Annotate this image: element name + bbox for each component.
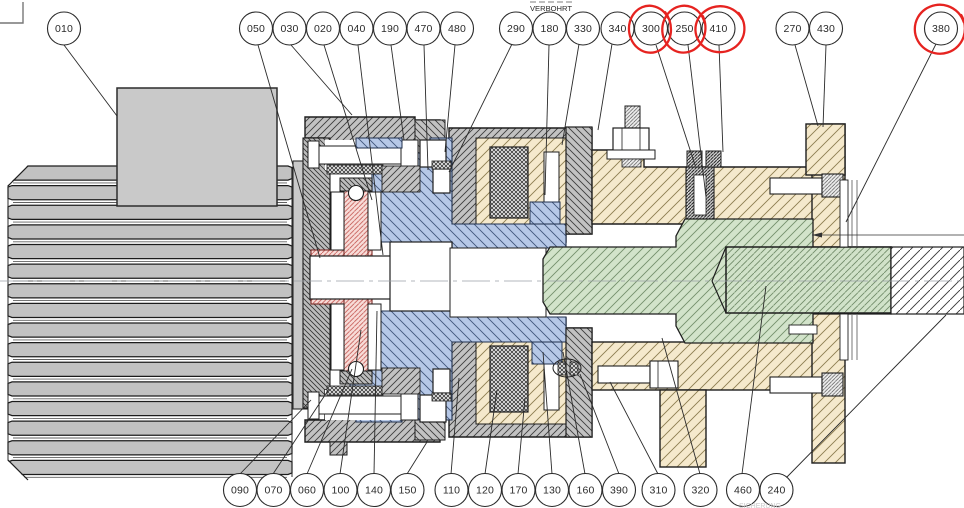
svg-text:340: 340	[608, 23, 626, 35]
svg-text:390: 390	[610, 485, 628, 497]
svg-text:070: 070	[264, 485, 282, 497]
svg-text:140: 140	[365, 485, 383, 497]
svg-text:180: 180	[540, 23, 558, 35]
svg-text:150: 150	[398, 485, 416, 497]
svg-text:470: 470	[414, 23, 432, 35]
svg-text:090: 090	[231, 485, 249, 497]
svg-text:300: 300	[642, 23, 660, 35]
svg-text:050: 050	[247, 23, 265, 35]
svg-text:270: 270	[783, 23, 801, 35]
svg-text:130: 130	[543, 485, 561, 497]
svg-text:480: 480	[448, 23, 466, 35]
svg-text:040: 040	[347, 23, 365, 35]
svg-text:100: 100	[331, 485, 349, 497]
svg-text:250: 250	[675, 23, 693, 35]
svg-text:VERBOHRT: VERBOHRT	[530, 4, 572, 13]
svg-text:020: 020	[314, 23, 332, 35]
svg-text:330: 330	[574, 23, 592, 35]
svg-text:310: 310	[649, 485, 667, 497]
svg-text:SICHERUNG: SICHERUNG	[739, 503, 781, 508]
svg-text:290: 290	[507, 23, 525, 35]
svg-text:170: 170	[509, 485, 527, 497]
svg-text:110: 110	[443, 485, 460, 497]
svg-text:190: 190	[381, 23, 399, 35]
svg-text:120: 120	[476, 485, 494, 497]
svg-text:160: 160	[576, 485, 594, 497]
svg-text:430: 430	[817, 23, 835, 35]
svg-text:460: 460	[734, 485, 752, 497]
svg-text:240: 240	[767, 485, 785, 497]
svg-text:060: 060	[298, 485, 316, 497]
svg-text:030: 030	[280, 23, 298, 35]
svg-text:010: 010	[55, 23, 73, 35]
svg-text:380: 380	[932, 23, 950, 35]
svg-text:410: 410	[709, 23, 727, 35]
svg-text:320: 320	[691, 485, 709, 497]
